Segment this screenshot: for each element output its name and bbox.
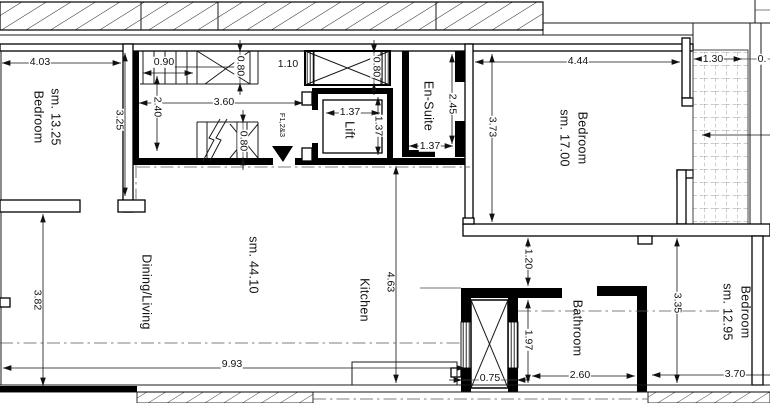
dim-bathroom-width: 2.60 — [569, 370, 591, 381]
bedroom-right-area: sm. 17.00 — [558, 109, 571, 167]
bedroom-right-label: Bedroom — [576, 112, 589, 165]
dim-stair-top-flight: 0.80 — [235, 55, 246, 77]
dim-stair-bottom-flight: 0.80 — [238, 130, 249, 152]
bathroom-label: Bathroom — [571, 300, 584, 357]
dim-corridor: 1.20 — [523, 248, 534, 270]
bedroom-bottom-wall — [752, 236, 763, 385]
dim-bedroom-right-width: 4.44 — [567, 56, 589, 67]
dim-kitchen-height: 4.63 — [385, 271, 396, 293]
dining-label: Dining/Living — [140, 254, 153, 329]
ensuite-label: En-Suite — [422, 81, 435, 131]
dim-ensuite-width: 1.37 — [419, 141, 441, 152]
dim-stair-well-depth: 2.40 — [152, 96, 163, 118]
bedroom-left-walls — [0, 44, 145, 385]
lift-label: Lift — [343, 121, 356, 139]
dim-living-width: 9.93 — [221, 359, 243, 370]
dim-bedroom-bottom-height: 3.35 — [672, 292, 683, 314]
dim-bathroom-depth: 1.97 — [523, 329, 534, 351]
kitchen-label: Kitchen — [358, 278, 371, 322]
top-party-wall — [0, 0, 770, 50]
entrance-arrow-icon — [272, 146, 293, 162]
dim-lift-width: 1.37 — [339, 107, 361, 118]
dim-landing: 1.10 — [277, 59, 299, 70]
staircase — [133, 51, 467, 165]
floorplan-canvas: Bedroom sm. 13.25 sm. 17.00 Bedroom sm. … — [0, 0, 770, 403]
dim-living-height: 3.82 — [32, 289, 43, 311]
floorplan-linework — [0, 0, 770, 403]
dim-bedroom-right-height: 3.73 — [487, 116, 498, 138]
dim-bedroom-left-width: 4.03 — [29, 57, 51, 68]
bedroom-bottom-area: sm. 12.95 — [721, 283, 734, 341]
dining-area: sm. 44.10 — [247, 236, 260, 294]
dim-bedroom-bottom-width: 3.70 — [724, 369, 746, 380]
dim-core-width: 3.60 — [213, 97, 235, 108]
dim-stair-width: 0.90 — [153, 57, 175, 68]
bedroom-left-area: sm. 13.25 — [49, 88, 62, 146]
dim-balcony-width: 1.30 — [702, 54, 724, 65]
dim-shaft-bottom-width: 0.75 — [479, 373, 501, 384]
bedroom-left-label: Bedroom — [32, 91, 45, 144]
dim-ensuite-height: 2.45 — [447, 93, 458, 115]
dim-bedroom-left-height: 3.25 — [114, 109, 125, 131]
flat-ref-label: F1,2&3 — [278, 113, 286, 137]
dim-balcony-cut: 0. — [757, 54, 768, 65]
bedroom-bottom-label: Bedroom — [739, 286, 752, 339]
top-wall — [0, 44, 693, 51]
dim-shaft-top: 0.80 — [371, 56, 382, 78]
dim-lift-depth: 1.37 — [373, 115, 384, 137]
